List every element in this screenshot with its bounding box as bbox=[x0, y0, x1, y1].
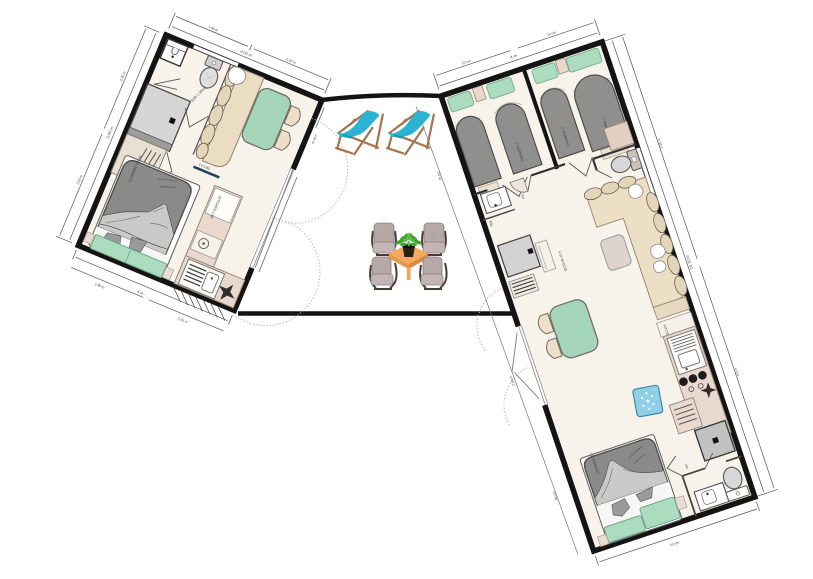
svg-text:10 cm: 10 cm bbox=[461, 59, 471, 66]
svg-text:2.10 m: 2.10 m bbox=[285, 57, 296, 65]
svg-text:10 cm: 10 cm bbox=[546, 30, 556, 37]
svg-text:10 cm: 10 cm bbox=[669, 541, 680, 548]
svg-text:2.54 m: 2.54 m bbox=[657, 138, 664, 149]
svg-text:10.70 m: 10.70 m bbox=[684, 254, 694, 270]
svg-text:46 cm: 46 cm bbox=[552, 491, 559, 501]
svg-text:4.5 m: 4.5 m bbox=[734, 367, 741, 376]
svg-text:4.00 m: 4.00 m bbox=[240, 49, 254, 59]
svg-text:1.80 m: 1.80 m bbox=[94, 282, 105, 290]
svg-text:5.00 m: 5.00 m bbox=[105, 125, 115, 139]
svg-text:0.80 m: 0.80 m bbox=[310, 134, 318, 145]
svg-text:2.05 m: 2.05 m bbox=[177, 317, 188, 325]
svg-text:70 cm: 70 cm bbox=[436, 171, 443, 181]
svg-text:1.90 m: 1.90 m bbox=[208, 25, 219, 33]
svg-text:4 m: 4 m bbox=[510, 53, 519, 60]
svg-text:2.30 m: 2.30 m bbox=[119, 71, 127, 82]
svg-text:2.60 m: 2.60 m bbox=[76, 174, 84, 185]
